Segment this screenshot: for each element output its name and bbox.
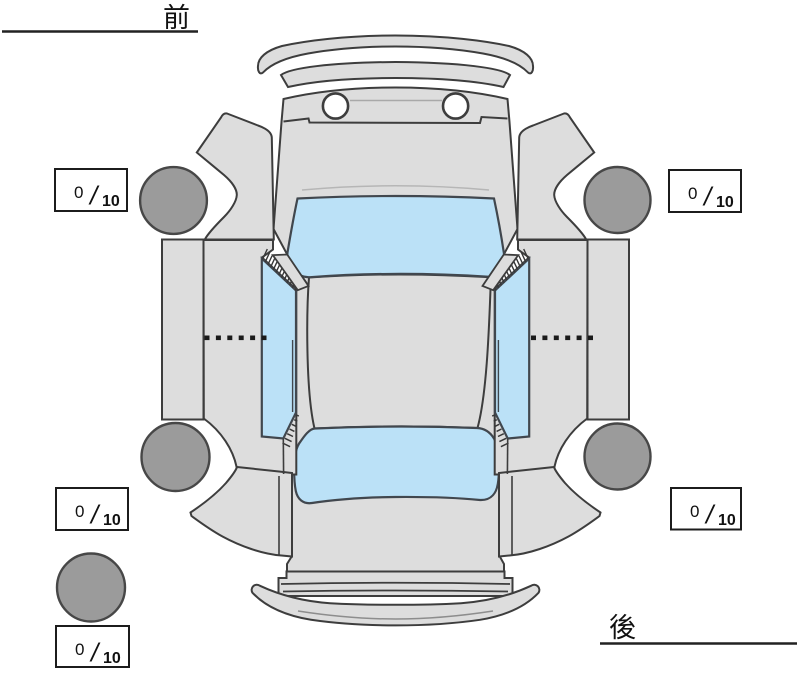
svg-text:後: 後 — [609, 613, 636, 643]
svg-text:0: 0 — [75, 502, 84, 521]
svg-text:0: 0 — [690, 502, 699, 521]
svg-text:前: 前 — [163, 3, 190, 33]
svg-text:10: 10 — [102, 193, 120, 210]
svg-text:0: 0 — [74, 183, 83, 202]
svg-text:10: 10 — [718, 512, 736, 529]
svg-text:0: 0 — [75, 640, 84, 659]
svg-text:10: 10 — [103, 650, 121, 667]
svg-text:10: 10 — [716, 194, 734, 211]
svg-text:10: 10 — [103, 512, 121, 529]
svg-text:0: 0 — [688, 184, 697, 203]
